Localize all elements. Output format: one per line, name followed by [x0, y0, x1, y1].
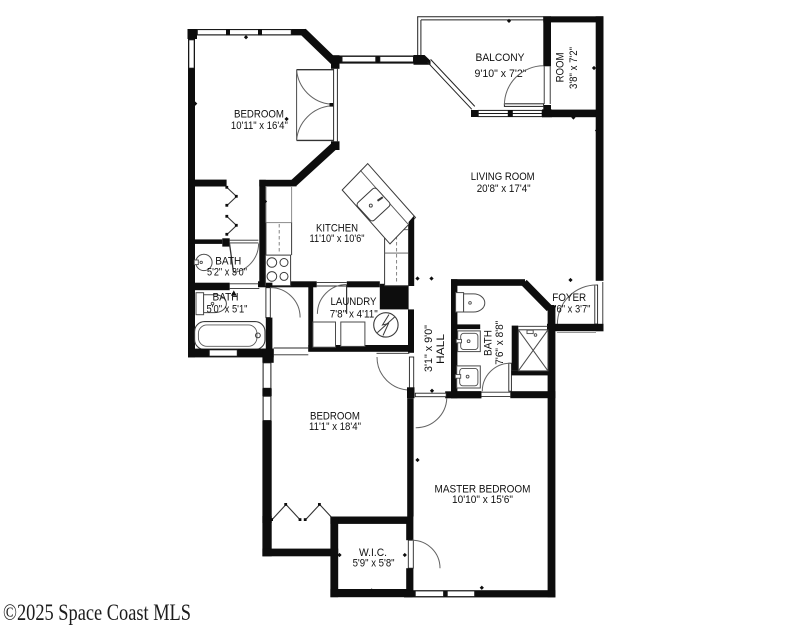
svg-text:7'6" x 8'8": 7'6" x 8'8": [494, 320, 506, 364]
svg-text:20'8" x 17'4": 20'8" x 17'4": [477, 183, 531, 195]
svg-text:BATH: BATH: [213, 291, 239, 303]
svg-text:LAUNDRY: LAUNDRY: [331, 296, 377, 308]
svg-text:BEDROOM: BEDROOM: [234, 109, 284, 121]
svg-text:9'10" x 7'2": 9'10" x 7'2": [475, 68, 527, 80]
svg-text:11'1" x 18'4": 11'1" x 18'4": [309, 421, 361, 433]
svg-text:BALCONY: BALCONY: [476, 52, 525, 64]
svg-text:7'6" x 3'7": 7'6" x 3'7": [550, 303, 591, 315]
svg-text:7'8" x 4'11": 7'8" x 4'11": [330, 309, 378, 321]
svg-text:FOYER: FOYER: [552, 292, 586, 304]
svg-text:5'2" x 3'0": 5'2" x 3'0": [207, 266, 247, 278]
svg-text:ROOM: ROOM: [554, 52, 566, 82]
svg-text:©2025 Space Coast MLS: ©2025 Space Coast MLS: [3, 600, 191, 625]
svg-text:10'10" x 15'6": 10'10" x 15'6": [452, 494, 513, 506]
svg-text:3'1" x 9'0": 3'1" x 9'0": [423, 325, 435, 372]
svg-text:10'11" x 16'4": 10'11" x 16'4": [231, 120, 288, 132]
svg-text:HALL: HALL: [435, 334, 447, 364]
svg-text:BATH: BATH: [483, 330, 495, 356]
svg-text:3'8" x 7'2": 3'8" x 7'2": [568, 47, 580, 89]
svg-text:11'10" x 10'6": 11'10" x 10'6": [310, 233, 365, 245]
svg-text:LIVING ROOM: LIVING ROOM: [471, 171, 535, 183]
svg-text:5'9" x 5'8": 5'9" x 5'8": [353, 557, 395, 569]
svg-text:5'0" x 5'1": 5'0" x 5'1": [207, 303, 248, 315]
